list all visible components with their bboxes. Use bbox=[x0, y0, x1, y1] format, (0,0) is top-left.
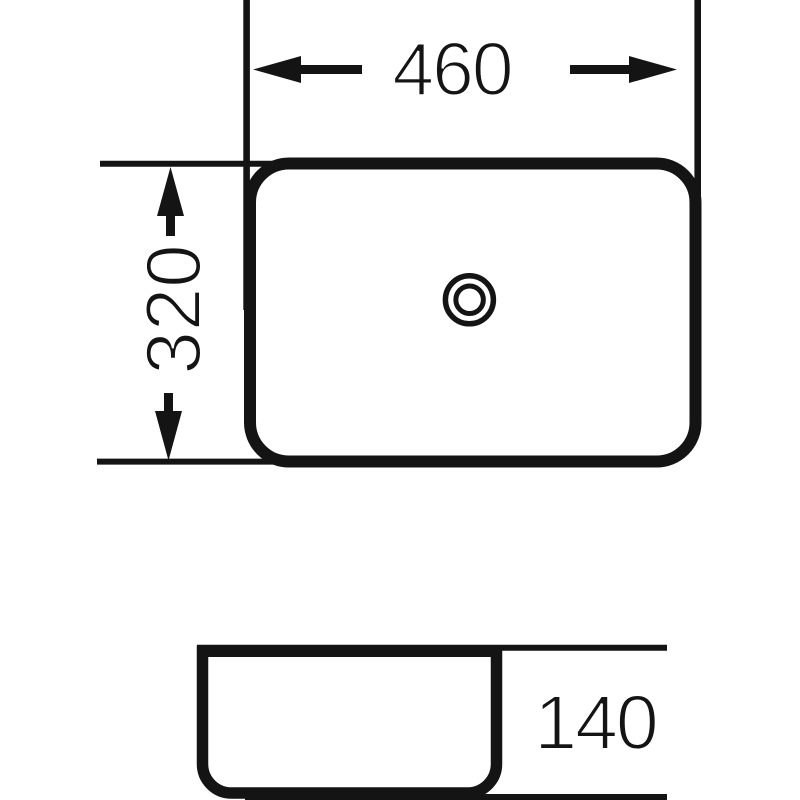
svg-text:460: 460 bbox=[392, 27, 511, 111]
svg-text:140: 140 bbox=[534, 680, 656, 766]
svg-text:320: 320 bbox=[129, 244, 217, 374]
